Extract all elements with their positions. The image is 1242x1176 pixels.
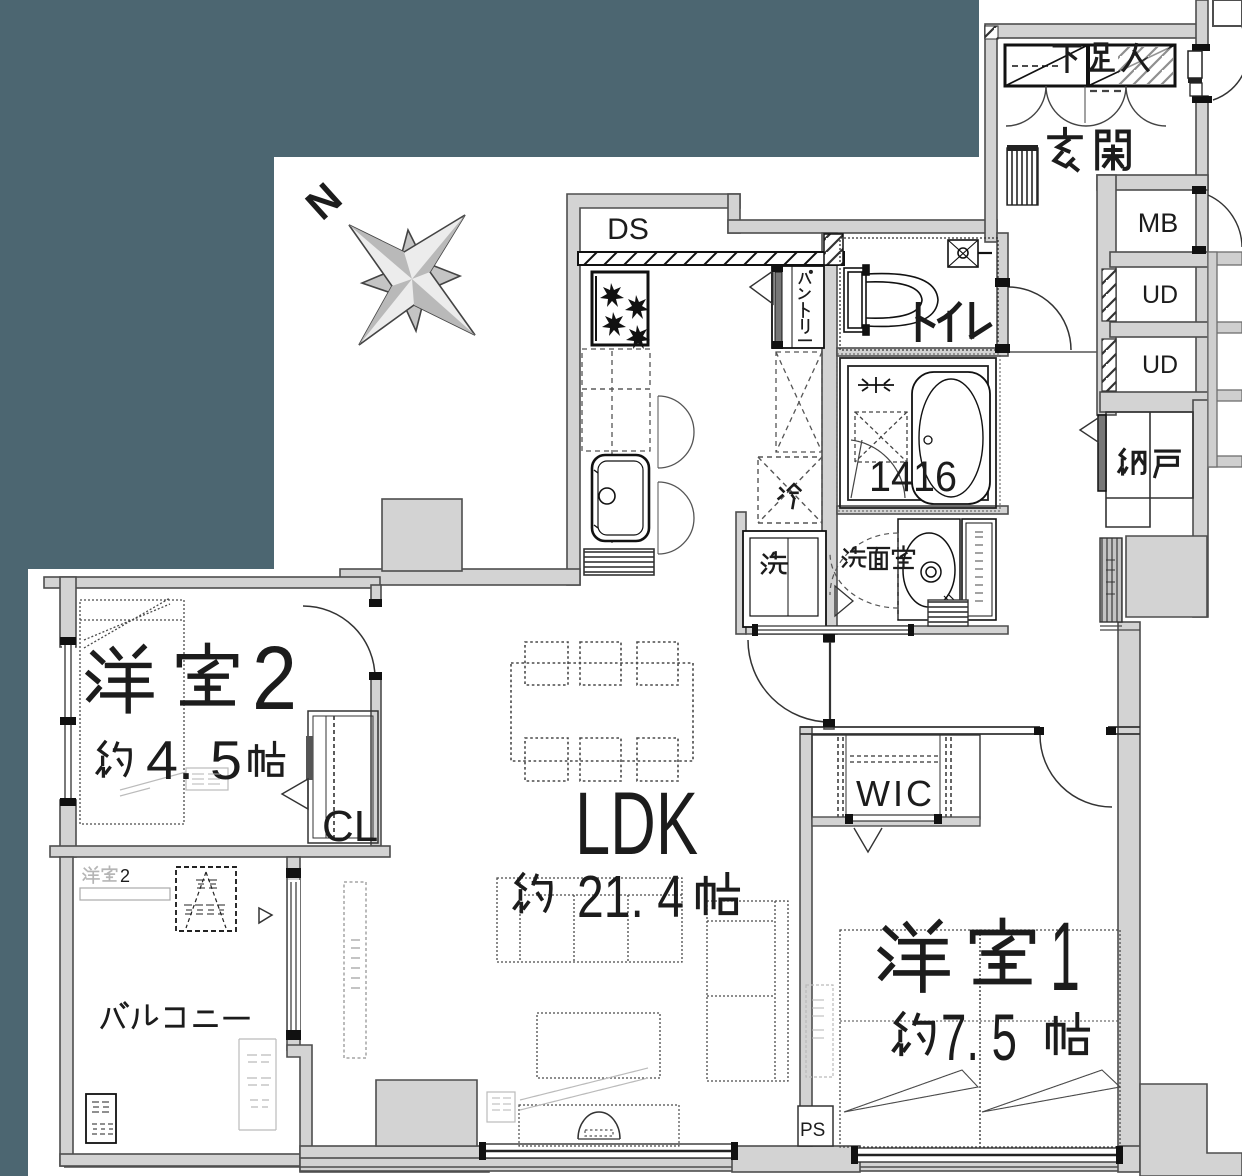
svg-text:UD: UD bbox=[1142, 351, 1178, 379]
svg-text:7. 5: 7. 5 bbox=[941, 1000, 1017, 1074]
svg-text:MB: MB bbox=[1138, 208, 1179, 238]
svg-text:WIC: WIC bbox=[856, 773, 935, 814]
svg-text:2: 2 bbox=[120, 866, 130, 886]
svg-text:1416: 1416 bbox=[869, 453, 957, 501]
svg-text:DS: DS bbox=[607, 213, 649, 246]
svg-text:2: 2 bbox=[252, 629, 297, 729]
svg-text:CL: CL bbox=[322, 802, 378, 851]
svg-text:1: 1 bbox=[1050, 902, 1080, 1011]
svg-text:LDK: LDK bbox=[575, 773, 698, 873]
svg-text:PS: PS bbox=[800, 1120, 825, 1141]
svg-text:UD: UD bbox=[1142, 281, 1178, 309]
svg-text:4. 5: 4. 5 bbox=[146, 729, 242, 791]
svg-text:21. 4: 21. 4 bbox=[577, 864, 684, 930]
